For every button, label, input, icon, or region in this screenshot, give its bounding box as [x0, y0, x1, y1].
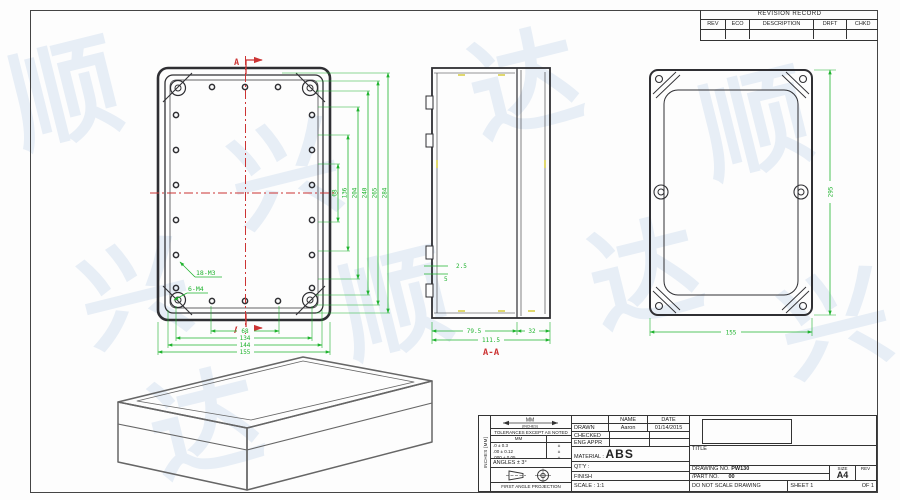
rev-col-header: REV [701, 20, 726, 29]
svg-text:2.5: 2.5 [456, 263, 467, 270]
part-no-row: /PART NO. 00 [690, 474, 829, 481]
svg-text:(INCHES): (INCHES) [522, 425, 538, 429]
lid-view-dims: 295 155 [650, 70, 836, 337]
drawn-label: DRAWN [572, 424, 609, 431]
isometric-view [118, 357, 432, 490]
perimeter-holes [173, 84, 314, 303]
lid-view [650, 70, 812, 315]
section-view-label: A-A [483, 348, 500, 358]
svg-text:295: 295 [828, 186, 835, 197]
size-value: A4 [830, 471, 855, 480]
svg-text:155: 155 [726, 330, 737, 337]
section-view-dims: 2.5 5 79.5 32 111.5 [424, 263, 550, 344]
projection-label: FIRST ANGLE PROJECTION [491, 483, 571, 491]
svg-text:204: 204 [352, 187, 359, 198]
corner-boss-holes [171, 81, 318, 308]
drawing-no-row: DRAWING NO. PW130 [690, 466, 829, 474]
title-block: INCHES [MM] MM (INCHES) TOLERANCES EXCEP… [478, 415, 877, 492]
part-no-value: 00 [728, 474, 734, 480]
description-col-header: DESCRIPTION [750, 20, 813, 29]
rev-cell: REV [856, 466, 875, 480]
svg-text:111.5: 111.5 [482, 337, 500, 344]
date-header: DATE [648, 416, 689, 423]
svg-text:68: 68 [332, 189, 339, 197]
tolerance-table: MM .0 ± 0.3 .00 ± 0.12 .000 ± 0.05 ± ± ± [491, 436, 571, 459]
svg-text:240: 240 [362, 187, 369, 198]
name-header: NAME [609, 416, 648, 423]
section-label-top: A [234, 58, 239, 68]
thread-labels: 18-M3 6-M4 [174, 262, 222, 300]
drawn-name: Aaron [609, 424, 648, 431]
m3-label: 18-M3 [196, 269, 216, 277]
checked-label: CHECKED [572, 432, 610, 439]
chkd-col-header: CHKD [847, 20, 878, 29]
revision-table-title: REVISION RECORD [701, 10, 878, 19]
logo-area [690, 416, 876, 446]
svg-text:136: 136 [342, 187, 349, 198]
qty-label: QT'Y : [572, 462, 689, 472]
logo-box [702, 419, 792, 444]
angles-tolerance: ANGLES ± 3° [491, 459, 571, 468]
finish-label: FINISH [572, 472, 689, 482]
svg-text:155: 155 [240, 349, 251, 356]
projection-symbol [491, 468, 571, 484]
tolerances-heading: TOLERANCES EXCEPT AS NOTED [491, 429, 571, 436]
svg-text:265: 265 [372, 187, 379, 198]
section-markers: A A [150, 56, 338, 336]
drawing-sheet: 顺 兴 达 顺 兴 顺 达 兴 达 [0, 0, 900, 500]
scale-row: SCALE : 1:1 [572, 481, 689, 491]
title-field: TITLE [690, 446, 876, 467]
size-cell: SIZE A4 [830, 466, 856, 480]
svg-text:79.5: 79.5 [467, 328, 482, 335]
m4-label: 6-M4 [188, 285, 204, 293]
top-view [158, 68, 330, 320]
sheet-cell: SHEET 1 OF 1 [788, 481, 876, 491]
drft-col-header: DRFT [814, 20, 848, 29]
svg-text:5: 5 [444, 276, 448, 283]
svg-text:68: 68 [241, 328, 249, 335]
svg-text:284: 284 [382, 187, 389, 198]
revision-table: REVISION RECORD REV ECO DESCRIPTION DRFT… [700, 10, 878, 41]
section-hatch-ticks [437, 75, 545, 311]
eco-col-header: ECO [726, 20, 751, 29]
title-block-side-label: INCHES [MM] [479, 416, 491, 491]
do-not-scale-note: DO NOT SCALE DRAWING [690, 481, 788, 491]
material-value: ABS [605, 447, 633, 461]
units-symbol: MM (INCHES) [491, 416, 571, 429]
material-row: MATERIAL : ABS [572, 447, 689, 462]
svg-text:144: 144 [240, 342, 251, 349]
svg-text:MM: MM [526, 418, 534, 424]
svg-text:134: 134 [240, 335, 251, 342]
scale-value: 1:1 [597, 483, 605, 489]
drawing-no-value: PW130 [731, 466, 749, 472]
drawn-date: 01/14/2015 [648, 424, 689, 431]
eng-appr-label: ENG APPR [572, 439, 610, 446]
svg-text:32: 32 [528, 328, 536, 335]
